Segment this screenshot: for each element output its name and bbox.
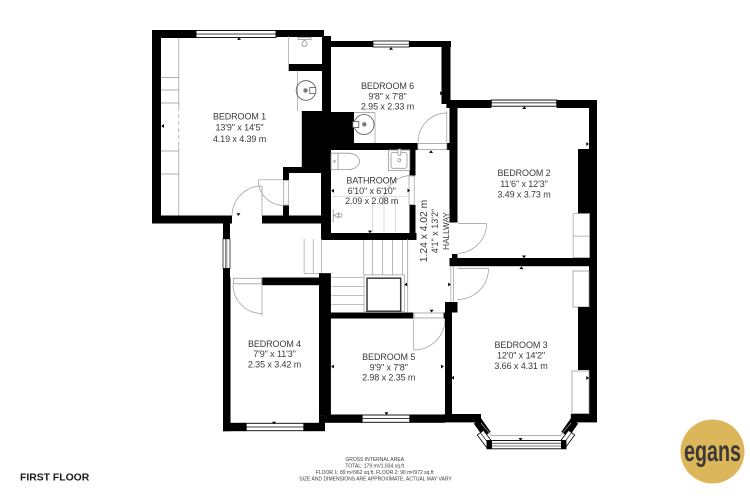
svg-text:2.35 x 3.42 m: 2.35 x 3.42 m	[248, 359, 301, 369]
svg-text:BEDROOM 2: BEDROOM 2	[497, 168, 550, 178]
svg-text:9'9" x 7'8": 9'9" x 7'8"	[370, 362, 408, 372]
svg-text:13'9" x 14'5": 13'9" x 14'5"	[215, 123, 263, 133]
svg-text:egans: egans	[684, 435, 741, 468]
svg-text:4.19 x 4.39 m: 4.19 x 4.39 m	[213, 134, 266, 144]
svg-text:2.09 x 2.08 m: 2.09 x 2.08 m	[345, 196, 398, 206]
svg-text:2.98 x 2.35 m: 2.98 x 2.35 m	[362, 373, 415, 383]
svg-text:FIRST FLOOR: FIRST FLOOR	[20, 473, 90, 484]
svg-text:9'8" x 7'8": 9'8" x 7'8"	[368, 91, 406, 101]
svg-text:FLOOR 1: 89 m²/962 sq.ft, FLOO: FLOOR 1: 89 m²/962 sq.ft, FLOOR 2: 90 m²…	[316, 470, 434, 476]
svg-text:BEDROOM 4: BEDROOM 4	[248, 339, 301, 349]
svg-text:2.95 x 2.33 m: 2.95 x 2.33 m	[361, 102, 414, 112]
svg-text:BEDROOM 5: BEDROOM 5	[362, 352, 415, 362]
svg-text:BEDROOM 1: BEDROOM 1	[213, 111, 266, 121]
svg-text:11'6" x 12'3": 11'6" x 12'3"	[500, 179, 547, 189]
svg-text:4'1" x 13'2": 4'1" x 13'2"	[430, 209, 440, 253]
svg-text:TOTAL: 179 m²/1,934 sq.ft: TOTAL: 179 m²/1,934 sq.ft	[345, 463, 404, 469]
svg-text:GROSS INTERNAL AREA: GROSS INTERNAL AREA	[345, 457, 404, 463]
svg-text:12'0" x 14'2": 12'0" x 14'2"	[497, 351, 545, 361]
svg-text:BATHROOM: BATHROOM	[346, 175, 397, 185]
svg-text:6'10" x 6'10": 6'10" x 6'10"	[348, 186, 396, 196]
svg-text:7'9" x 11'3": 7'9" x 11'3"	[253, 349, 296, 359]
svg-text:3.66 x 4.31 m: 3.66 x 4.31 m	[494, 361, 547, 371]
svg-text:BEDROOM 3: BEDROOM 3	[494, 340, 547, 350]
svg-text:BEDROOM 6: BEDROOM 6	[361, 81, 414, 91]
svg-text:1.24 x 4.02 m: 1.24 x 4.02 m	[419, 200, 430, 262]
svg-text:3.49 x 3.73 m: 3.49 x 3.73 m	[497, 190, 550, 200]
svg-text:SIZE AND DIMENSIONS ARE APPROX: SIZE AND DIMENSIONS ARE APPROXIMATE, ACT…	[299, 477, 452, 483]
